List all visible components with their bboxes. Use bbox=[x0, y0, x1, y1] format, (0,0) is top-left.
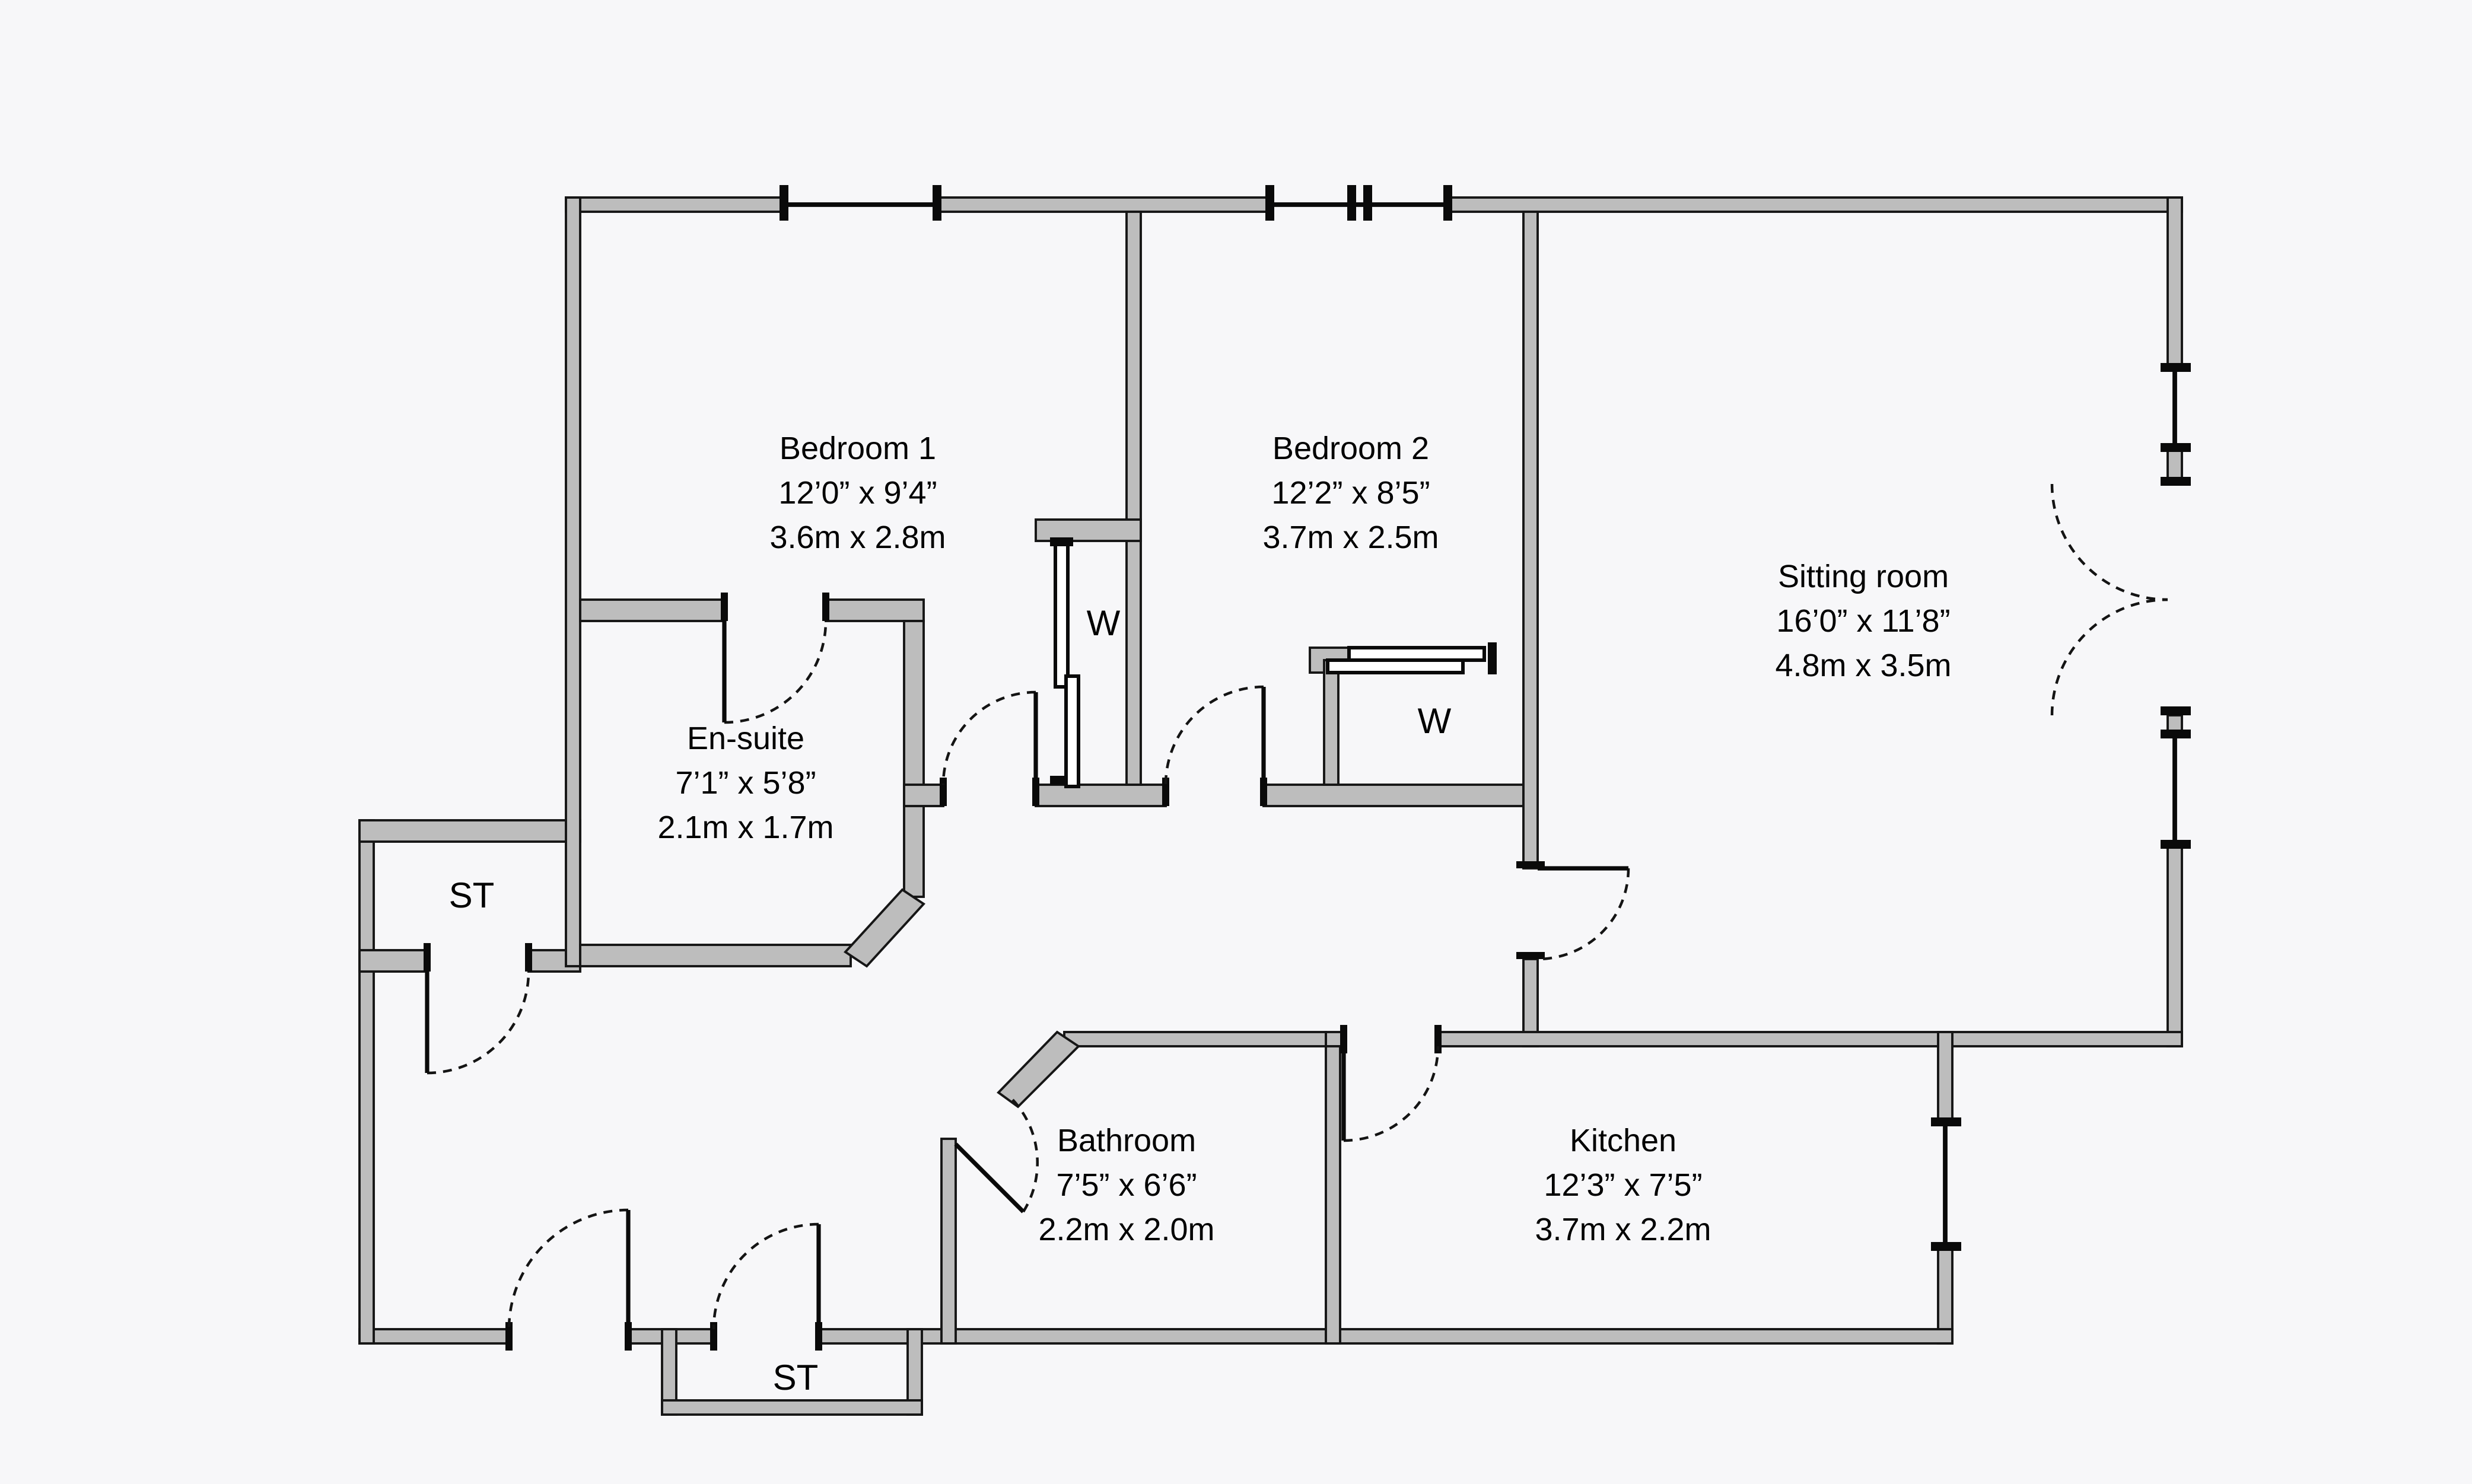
wall-segment bbox=[936, 198, 1271, 212]
window-door-cap bbox=[822, 593, 829, 621]
wall-segment bbox=[580, 945, 851, 966]
room-bathroom-dims: 2.2m x 2.0m bbox=[1038, 1212, 1214, 1247]
wall-segment bbox=[1036, 785, 1166, 806]
window-door-cap bbox=[780, 185, 788, 221]
window-door-cap bbox=[2161, 363, 2191, 372]
floor-plan-canvas: Bedroom 112’0” x 9’4”3.6m x 2.8mBedroom … bbox=[0, 0, 2472, 1484]
window-door-cap bbox=[1265, 185, 1274, 221]
wall-segment bbox=[1326, 1046, 1340, 1343]
wall-segment bbox=[359, 820, 374, 1343]
room-kitchen-dims: 3.7m x 2.2m bbox=[1535, 1212, 1711, 1247]
wall-segment bbox=[566, 198, 580, 966]
window-door-cap bbox=[424, 943, 431, 972]
wall-segment bbox=[1447, 198, 2182, 212]
wall-segment bbox=[1264, 785, 1523, 806]
wall-segment bbox=[819, 1329, 1952, 1343]
room-en-suite-dims: 7’1” x 5’8” bbox=[675, 765, 816, 801]
wardrobe-bedroom-2-label: W bbox=[1418, 701, 1452, 741]
room-bedroom-1-name: Bedroom 1 bbox=[780, 431, 936, 466]
wall-segment bbox=[1523, 212, 1538, 868]
window-door-cap bbox=[2161, 840, 2191, 849]
window-door-cap bbox=[1931, 1117, 1961, 1126]
wardrobe-bedroom-1-label: W bbox=[1087, 603, 1121, 643]
wall-segment bbox=[662, 1400, 922, 1415]
wall-segment bbox=[1438, 1032, 1938, 1046]
room-label-bedroom-1: Bedroom 112’0” x 9’4”3.6m x 2.8m bbox=[769, 431, 946, 555]
wall-segment bbox=[580, 600, 724, 621]
wall-segment bbox=[1127, 212, 1141, 785]
sliding-door-panel bbox=[1055, 544, 1068, 687]
room-bedroom-2-dims: 3.7m x 2.5m bbox=[1262, 520, 1439, 555]
sliding-door-panel bbox=[1066, 676, 1078, 786]
wall-segment bbox=[904, 785, 943, 806]
window-door-cap bbox=[933, 185, 941, 221]
window-door-cap bbox=[1488, 642, 1497, 674]
window-door-cap bbox=[2161, 443, 2191, 452]
wall-segment bbox=[1938, 1032, 2182, 1046]
storage-hall-label: ST bbox=[449, 875, 495, 915]
room-sitting-room-dims: 16’0” x 11’8” bbox=[1776, 603, 1950, 639]
wall-segment bbox=[1324, 660, 1338, 785]
room-bathroom-dims: 7’5” x 6’6” bbox=[1056, 1167, 1197, 1203]
window-door-cap bbox=[940, 778, 947, 806]
sliding-door-panel bbox=[1328, 660, 1463, 673]
window-door-cap bbox=[1347, 185, 1356, 221]
room-bedroom-2-name: Bedroom 2 bbox=[1272, 431, 1429, 466]
room-label-sitting-room: Sitting room16’0” x 11’8”4.8m x 3.5m bbox=[1775, 559, 1951, 683]
wall-segment bbox=[826, 600, 924, 621]
room-en-suite-name: En-suite bbox=[687, 721, 804, 756]
wall-segment bbox=[359, 1329, 509, 1343]
window-door-cap bbox=[1931, 1242, 1961, 1251]
window-door-cap bbox=[1363, 185, 1372, 221]
window-door-cap bbox=[525, 943, 532, 972]
sliding-door-panel bbox=[1349, 648, 1484, 660]
room-label-bedroom-2: Bedroom 212’2” x 8’5”3.7m x 2.5m bbox=[1262, 431, 1439, 555]
room-bedroom-1-dims: 12’0” x 9’4” bbox=[778, 475, 937, 511]
wall-segment bbox=[2168, 845, 2182, 1046]
storage-entrance-label: ST bbox=[773, 1358, 819, 1397]
wall-segment bbox=[904, 621, 924, 897]
room-label-bathroom: Bathroom7’5” x 6’6”2.2m x 2.0m bbox=[1038, 1123, 1214, 1247]
window-door-cap bbox=[1516, 952, 1545, 959]
floor-plan: Bedroom 112’0” x 9’4”3.6m x 2.8mBedroom … bbox=[0, 0, 2472, 1484]
wall-segment bbox=[359, 950, 427, 972]
room-kitchen-dims: 12’3” x 7’5” bbox=[1544, 1167, 1702, 1203]
room-sitting-room-dims: 4.8m x 3.5m bbox=[1775, 648, 1951, 683]
window-door-cap bbox=[2161, 477, 2191, 486]
room-bedroom-2-dims: 12’2” x 8’5” bbox=[1271, 475, 1430, 511]
window-door-cap bbox=[1443, 185, 1452, 221]
wall-segment bbox=[1064, 1032, 1326, 1046]
room-sitting-room-name: Sitting room bbox=[1778, 559, 1949, 594]
room-bedroom-1-dims: 3.6m x 2.8m bbox=[769, 520, 946, 555]
room-bathroom-name: Bathroom bbox=[1057, 1123, 1196, 1158]
wall-segment bbox=[359, 820, 580, 842]
wall-segment bbox=[2168, 198, 2182, 368]
window-door-cap bbox=[2161, 730, 2191, 738]
wall-segment bbox=[566, 198, 785, 212]
room-en-suite-dims: 2.1m x 1.7m bbox=[657, 810, 833, 845]
wall-segment bbox=[941, 1139, 956, 1343]
wall-segment bbox=[1938, 1032, 1952, 1123]
window-door-cap bbox=[721, 593, 728, 621]
room-kitchen-name: Kitchen bbox=[1570, 1123, 1676, 1158]
window-door-cap bbox=[2161, 706, 2191, 715]
